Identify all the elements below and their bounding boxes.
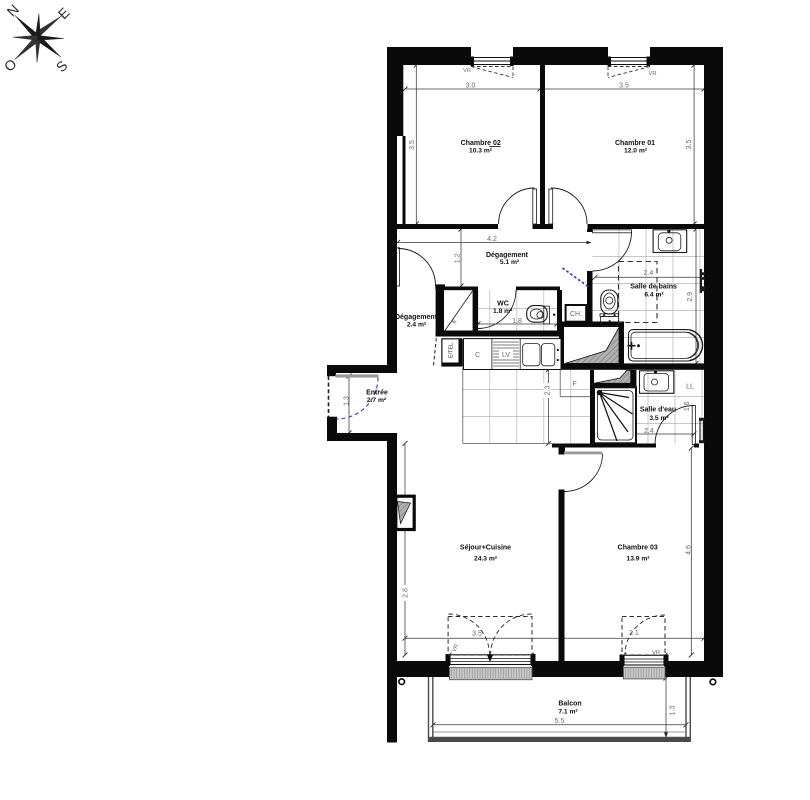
svg-text:1.8: 1.8 [512,318,522,325]
svg-text:C: C [475,352,480,359]
svg-text:3.5: 3.5 [472,631,482,638]
svg-text:Chambre 03: Chambre 03 [618,545,658,552]
svg-text:2.8: 2.8 [403,588,410,598]
svg-text:VR: VR [463,68,471,74]
svg-text:4.2: 4.2 [487,236,497,243]
svg-text:Chambre 01: Chambre 01 [615,140,655,147]
svg-text:Salle de bains: Salle de bains [630,284,677,291]
svg-text:2.3: 2.3 [544,386,551,396]
svg-text:Séjour+Cuisine: Séjour+Cuisine [460,545,511,552]
svg-text:1.2: 1.2 [454,253,461,263]
svg-text:2.7 m²: 2.7 m² [367,397,387,404]
svg-text:12.0 m²: 12.0 m² [624,148,648,155]
svg-text:5.1 m²: 5.1 m² [500,259,520,266]
svg-text:2.4: 2.4 [644,270,654,277]
svg-text:2.4 m²: 2.4 m² [407,322,427,329]
svg-text:Dégagement: Dégagement [486,252,529,259]
svg-text:2.9: 2.9 [687,292,694,302]
svg-text:10.3 m²: 10.3 m² [469,148,493,155]
svg-text:3.5: 3.5 [619,82,629,89]
svg-text:3.5: 3.5 [409,140,416,150]
svg-text:1.3: 1.3 [343,396,350,406]
svg-text:VR: VR [648,71,656,77]
svg-text:1.3: 1.3 [670,706,677,716]
svg-text:WC: WC [497,301,509,308]
svg-text:24.3 m²: 24.3 m² [474,556,498,563]
svg-text:2.4: 2.4 [644,428,654,435]
svg-text:1.8 m²: 1.8 m² [493,308,513,315]
svg-text:3.5 m²: 3.5 m² [649,415,669,422]
svg-text:Balcon: Balcon [558,701,581,708]
svg-text:F: F [572,381,576,388]
svg-text:4.6: 4.6 [685,545,692,555]
svg-text:13.9 m²: 13.9 m² [626,556,650,563]
svg-text:CH.: CH. [570,311,582,318]
svg-text:LL: LL [686,384,694,391]
svg-text:1.6: 1.6 [684,401,691,411]
svg-text:E/TEL: E/TEL [449,343,455,358]
svg-text:Entrée: Entrée [366,389,388,396]
svg-text:6.4 m²: 6.4 m² [644,292,664,299]
svg-text:2.1: 2.1 [629,630,639,637]
svg-text:VR: VR [652,650,660,656]
svg-text:3.5: 3.5 [686,140,693,150]
svg-text:LV: LV [502,352,510,359]
svg-text:5.5: 5.5 [555,718,565,725]
svg-text:3.0: 3.0 [466,82,476,89]
svg-text:Salle d'eau: Salle d'eau [640,407,676,414]
svg-text:Dégagement: Dégagement [395,314,438,321]
svg-text:Chambre 02: Chambre 02 [461,140,501,147]
svg-text:7.1 m²: 7.1 m² [558,709,578,716]
